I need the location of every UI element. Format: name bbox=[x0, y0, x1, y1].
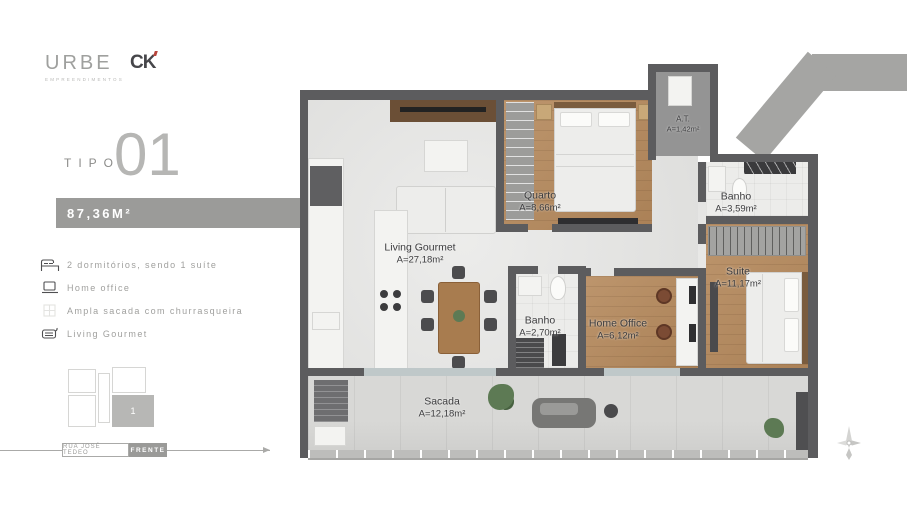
dining-chair bbox=[421, 318, 434, 331]
blanket-fold bbox=[556, 154, 634, 155]
wall-left bbox=[300, 90, 308, 458]
room-label-suite: Suite A=11,17m² bbox=[715, 266, 761, 291]
bathroom-vanity bbox=[518, 276, 542, 296]
dining-chair bbox=[484, 318, 497, 331]
wall-at-right bbox=[710, 64, 718, 162]
site-key-plan: 1 bbox=[62, 367, 162, 431]
plant bbox=[764, 418, 784, 438]
wall-right bbox=[808, 154, 818, 458]
site-unit-outline bbox=[112, 367, 146, 393]
pillow bbox=[784, 318, 799, 352]
room-label-banho: Banho A=2,70m² bbox=[519, 315, 560, 340]
wall-home-office-top bbox=[614, 268, 698, 276]
cooktop-burner bbox=[380, 303, 388, 311]
wall-living-quarto bbox=[496, 100, 504, 232]
wall-sacada bbox=[680, 368, 808, 376]
street-name: RUA JOSÉ TEDEO bbox=[62, 443, 129, 457]
side-table bbox=[604, 404, 618, 418]
dining-chair bbox=[452, 266, 465, 279]
bathroom-vanity bbox=[708, 166, 726, 192]
urbe-logo-text: URBE bbox=[45, 52, 113, 74]
wall-banho-suite bbox=[706, 216, 808, 224]
ck-logo-text: CK bbox=[130, 52, 155, 73]
wall-banho-social-left bbox=[698, 162, 706, 202]
wall-sacada bbox=[496, 368, 604, 376]
wall-at-left bbox=[648, 64, 656, 160]
churrasqueira-grill bbox=[314, 380, 348, 422]
sliding-glass-door bbox=[604, 368, 680, 376]
monitor bbox=[689, 286, 696, 304]
site-core-outline bbox=[98, 373, 110, 423]
shower-glass bbox=[744, 162, 796, 174]
wardrobe bbox=[708, 226, 806, 256]
feature-label: Ampla sacada com churrasqueira bbox=[67, 306, 243, 316]
bbq-grill-top bbox=[540, 403, 578, 415]
room-label-sacada: Sacada A=12,18m² bbox=[419, 396, 466, 421]
unit-type-label: TIPO bbox=[64, 156, 120, 170]
unit-area-value: 87,36M² bbox=[56, 206, 132, 221]
monitor bbox=[689, 324, 696, 342]
pillow bbox=[598, 112, 630, 127]
site-unit-number: 1 bbox=[130, 406, 135, 416]
wall-top bbox=[300, 90, 656, 100]
tv bbox=[400, 107, 486, 112]
kitchen-sink bbox=[312, 312, 340, 330]
balcony-sink bbox=[314, 426, 346, 446]
balcony-railing-edge bbox=[308, 458, 808, 460]
feature-item: 2 dormitórios, sendo 1 suíte bbox=[40, 253, 243, 276]
bed-icon bbox=[40, 257, 60, 272]
wall-suite-left bbox=[698, 268, 706, 368]
wall-home-office-top bbox=[586, 268, 591, 276]
sofa bbox=[396, 186, 496, 234]
ck-logo: CK bbox=[130, 52, 155, 74]
site-unit-outline bbox=[68, 395, 96, 427]
cooktop-burner bbox=[393, 290, 401, 298]
sofa-cushion-divider bbox=[445, 188, 446, 232]
suite-dresser bbox=[710, 282, 718, 352]
feature-item: Living Gourmet bbox=[40, 322, 243, 345]
balcony-railing bbox=[308, 450, 808, 458]
table-plant bbox=[453, 310, 465, 322]
feature-label: Home office bbox=[67, 283, 130, 293]
office-chair bbox=[656, 288, 672, 304]
water-heater bbox=[668, 76, 692, 106]
brochure-page: URBE EMPREENDIMENTOS CK TIPO 01 87,36M² … bbox=[0, 0, 907, 510]
balcony-icon bbox=[40, 303, 60, 318]
dining-chair bbox=[484, 290, 497, 303]
compass-icon bbox=[833, 424, 865, 462]
sliding-glass-door bbox=[364, 368, 496, 376]
cooktop-burner bbox=[393, 303, 401, 311]
pillow bbox=[784, 278, 799, 312]
urbe-logo-subtext: EMPREENDIMENTOS bbox=[45, 77, 124, 82]
street-arrow-icon bbox=[263, 447, 270, 453]
wall-suite-left bbox=[698, 224, 706, 244]
office-chair bbox=[656, 324, 672, 340]
wall-banho-right bbox=[578, 266, 586, 368]
wall-quarto-corridor bbox=[504, 224, 528, 232]
feature-item: Home office bbox=[40, 276, 243, 299]
wall-at-top bbox=[648, 64, 718, 72]
feature-label: Living Gourmet bbox=[67, 329, 148, 339]
dining-chair bbox=[421, 290, 434, 303]
site-unit-highlighted: 1 bbox=[112, 395, 154, 427]
urbe-logo: URBE EMPREENDIMENTOS bbox=[45, 52, 124, 82]
floor-plan: Living Gourmet A=27,18m² Quarto A=8,66m²… bbox=[300, 62, 818, 460]
blanket-fold bbox=[556, 166, 634, 167]
pillow bbox=[560, 112, 592, 127]
fridge bbox=[310, 166, 342, 206]
room-label-quarto: Quarto A=8,66m² bbox=[519, 190, 560, 215]
wall-banho-left bbox=[508, 266, 516, 368]
room-label-home-office: Home Office A=6,12m² bbox=[589, 318, 647, 343]
cooktop-burner bbox=[380, 290, 388, 298]
planter-box bbox=[796, 392, 808, 450]
ck-logo-accent bbox=[154, 51, 159, 56]
shower bbox=[516, 338, 544, 368]
room-label-banho-social: Banho A=3,59m² bbox=[715, 191, 756, 216]
site-unit-outline bbox=[68, 369, 96, 393]
feature-label: 2 dormitórios, sendo 1 suíte bbox=[67, 260, 217, 270]
room-label-living: Living Gourmet A=27,18m² bbox=[384, 242, 455, 267]
laptop-icon bbox=[40, 280, 60, 295]
wall-sacada bbox=[308, 368, 364, 376]
street-front-badge: FRENTE bbox=[129, 443, 167, 457]
nightstand bbox=[536, 104, 552, 120]
toilet bbox=[550, 276, 566, 300]
wall-quarto-corridor bbox=[552, 224, 652, 232]
room-label-at: A.T. A=1,42m² bbox=[667, 114, 700, 133]
feature-list: 2 dormitórios, sendo 1 suíte Home office… bbox=[40, 253, 243, 345]
wall-top-right bbox=[710, 154, 818, 162]
blanket-fold bbox=[762, 274, 763, 362]
grill-icon bbox=[40, 326, 60, 341]
area-bar: 87,36M² bbox=[56, 198, 300, 228]
coffee-table bbox=[424, 140, 468, 172]
feature-item: Ampla sacada com churrasqueira bbox=[40, 299, 243, 322]
unit-type-number: 01 bbox=[114, 120, 181, 189]
